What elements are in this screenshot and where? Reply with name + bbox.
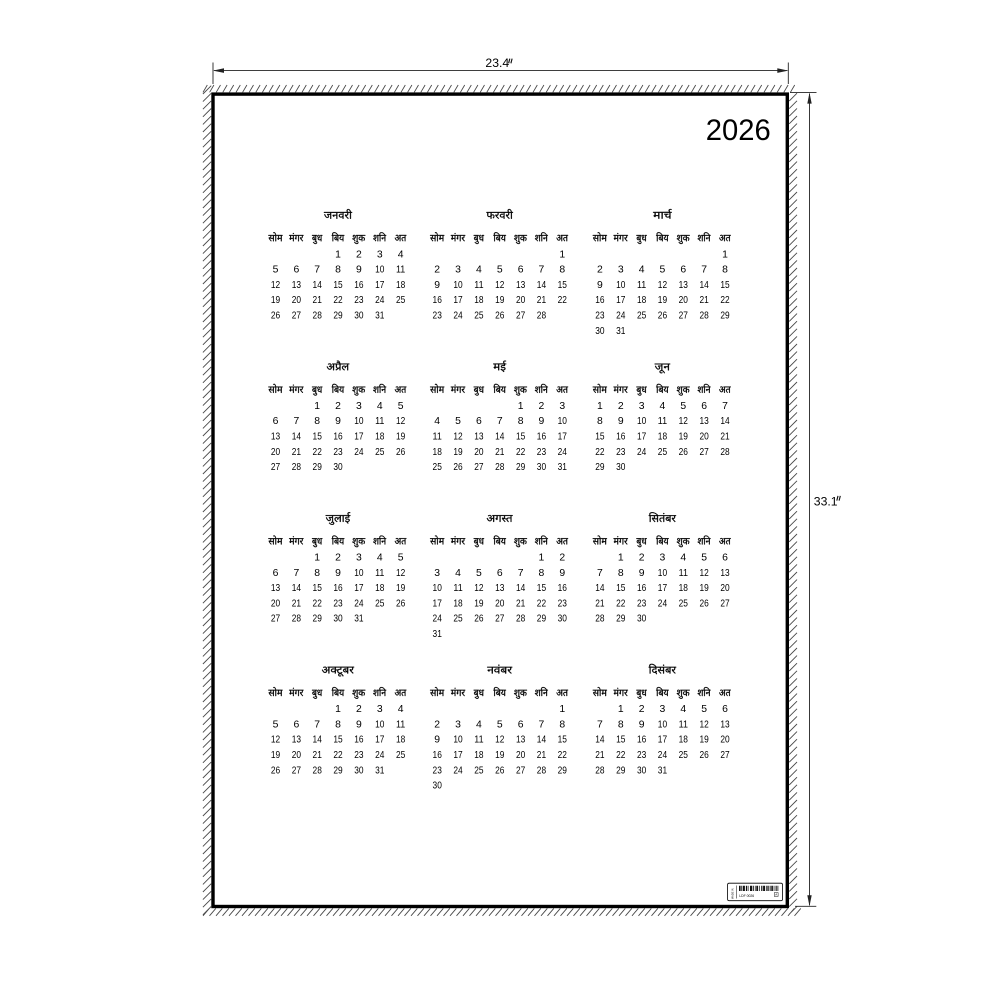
svg-text:14: 14 — [495, 432, 504, 443]
svg-text:27: 27 — [720, 598, 729, 609]
svg-text:31: 31 — [616, 326, 625, 337]
svg-text:28: 28 — [700, 311, 709, 322]
svg-text:9: 9 — [434, 735, 440, 746]
svg-text:8: 8 — [335, 719, 341, 730]
svg-text:13: 13 — [700, 416, 709, 427]
svg-text:25: 25 — [396, 750, 405, 761]
svg-text:29: 29 — [616, 765, 625, 776]
svg-text:28: 28 — [292, 462, 301, 473]
svg-text:25: 25 — [679, 750, 688, 761]
svg-text:7: 7 — [539, 265, 545, 276]
svg-text:10: 10 — [453, 735, 462, 746]
svg-text:24: 24 — [616, 311, 625, 322]
svg-text:33.1: 33.1 — [814, 494, 838, 508]
svg-text:29: 29 — [313, 614, 322, 625]
svg-text:18: 18 — [433, 447, 442, 458]
svg-text:15: 15 — [313, 583, 322, 594]
svg-text:27: 27 — [271, 462, 280, 473]
svg-text:6: 6 — [722, 704, 728, 715]
svg-text:9: 9 — [618, 416, 624, 427]
svg-text:18: 18 — [474, 750, 483, 761]
svg-text:16: 16 — [537, 432, 546, 443]
svg-text:19: 19 — [271, 295, 280, 306]
svg-text:5: 5 — [273, 719, 279, 730]
svg-text:27: 27 — [271, 614, 280, 625]
svg-text:31: 31 — [375, 765, 384, 776]
svg-text:3: 3 — [639, 401, 645, 412]
svg-text:11: 11 — [474, 735, 483, 746]
svg-text:22: 22 — [616, 750, 625, 761]
svg-text:23: 23 — [333, 447, 342, 458]
svg-text:14: 14 — [313, 735, 322, 746]
svg-text:17: 17 — [453, 295, 462, 306]
svg-text:12: 12 — [495, 735, 504, 746]
svg-text:25: 25 — [474, 765, 483, 776]
svg-text:21: 21 — [720, 432, 729, 443]
svg-text:19: 19 — [700, 583, 709, 594]
svg-text:29: 29 — [333, 765, 342, 776]
svg-text:25: 25 — [679, 598, 688, 609]
svg-text:20: 20 — [292, 750, 301, 761]
svg-text:24: 24 — [453, 311, 462, 322]
svg-text:24: 24 — [354, 447, 363, 458]
svg-text:13: 13 — [271, 583, 280, 594]
svg-text:9: 9 — [539, 416, 545, 427]
svg-text:23: 23 — [637, 598, 646, 609]
svg-text:1: 1 — [618, 704, 624, 715]
svg-text:21: 21 — [292, 447, 301, 458]
svg-text:26: 26 — [679, 447, 688, 458]
svg-text:11: 11 — [658, 416, 667, 427]
svg-text:26: 26 — [271, 765, 280, 776]
svg-text:24: 24 — [637, 447, 646, 458]
svg-text:A: A — [775, 893, 777, 897]
svg-text:26: 26 — [658, 311, 667, 322]
svg-text:15: 15 — [333, 280, 342, 291]
svg-text:29: 29 — [537, 614, 546, 625]
svg-text:23: 23 — [637, 750, 646, 761]
svg-text:20: 20 — [720, 583, 729, 594]
svg-text:27: 27 — [292, 311, 301, 322]
svg-text:7: 7 — [314, 265, 320, 276]
svg-text:30: 30 — [637, 765, 646, 776]
svg-text:16: 16 — [616, 432, 625, 443]
svg-text:4: 4 — [660, 401, 666, 412]
svg-text:4: 4 — [434, 416, 440, 427]
svg-text:7: 7 — [722, 401, 728, 412]
svg-text:2: 2 — [618, 401, 624, 412]
svg-text:29: 29 — [720, 311, 729, 322]
svg-text:6: 6 — [518, 265, 524, 276]
svg-text:22: 22 — [516, 447, 525, 458]
svg-text:7: 7 — [518, 568, 524, 579]
svg-text:15: 15 — [313, 432, 322, 443]
svg-text:15: 15 — [558, 735, 567, 746]
svg-text:28: 28 — [595, 765, 604, 776]
svg-text:20: 20 — [679, 295, 688, 306]
svg-text:10: 10 — [375, 719, 384, 730]
svg-text:5: 5 — [273, 265, 279, 276]
svg-text:22: 22 — [558, 295, 567, 306]
svg-text:30: 30 — [354, 765, 363, 776]
svg-text:28: 28 — [516, 614, 525, 625]
svg-text:7: 7 — [597, 568, 603, 579]
svg-text:19: 19 — [271, 750, 280, 761]
svg-text:1: 1 — [335, 704, 341, 715]
svg-text:26: 26 — [495, 765, 504, 776]
svg-text:6: 6 — [476, 416, 482, 427]
svg-text:29: 29 — [616, 614, 625, 625]
svg-text:26: 26 — [474, 614, 483, 625]
svg-text:18: 18 — [637, 295, 646, 306]
svg-text:4: 4 — [476, 719, 482, 730]
svg-text:26: 26 — [271, 311, 280, 322]
svg-text:23: 23 — [537, 447, 546, 458]
svg-text:18: 18 — [396, 280, 405, 291]
svg-text:8: 8 — [539, 568, 545, 579]
svg-text:22: 22 — [537, 598, 546, 609]
svg-text:9: 9 — [597, 280, 603, 291]
svg-text:13: 13 — [271, 432, 280, 443]
svg-text:23: 23 — [354, 295, 363, 306]
svg-text:19: 19 — [495, 750, 504, 761]
svg-text:1: 1 — [618, 553, 624, 564]
svg-text:9: 9 — [559, 568, 565, 579]
svg-text:12: 12 — [271, 735, 280, 746]
svg-text:3: 3 — [559, 401, 565, 412]
svg-text:20: 20 — [474, 447, 483, 458]
svg-text:12: 12 — [396, 416, 405, 427]
svg-text:4: 4 — [680, 704, 686, 715]
svg-text:14: 14 — [292, 432, 301, 443]
svg-text:2: 2 — [434, 719, 440, 730]
svg-text:24: 24 — [354, 598, 363, 609]
svg-text:6: 6 — [273, 568, 279, 579]
svg-text:11: 11 — [396, 719, 405, 730]
svg-text:24: 24 — [375, 295, 384, 306]
svg-text:13: 13 — [495, 583, 504, 594]
svg-text:22: 22 — [313, 447, 322, 458]
svg-text:12: 12 — [700, 568, 709, 579]
svg-text:21: 21 — [516, 598, 525, 609]
svg-text:6: 6 — [497, 568, 503, 579]
svg-text:9: 9 — [335, 416, 341, 427]
svg-text:3: 3 — [660, 553, 666, 564]
svg-text:14: 14 — [537, 735, 546, 746]
svg-text:10: 10 — [658, 568, 667, 579]
svg-text:10: 10 — [616, 280, 625, 291]
svg-text:19: 19 — [396, 583, 405, 594]
svg-text:21: 21 — [313, 750, 322, 761]
svg-text:8: 8 — [559, 265, 565, 276]
svg-text:29: 29 — [558, 765, 567, 776]
svg-text:31: 31 — [354, 614, 363, 625]
svg-text:26: 26 — [495, 311, 504, 322]
svg-text:1: 1 — [518, 401, 524, 412]
svg-text:5: 5 — [701, 553, 707, 564]
svg-text:17: 17 — [354, 432, 363, 443]
svg-text:27: 27 — [700, 447, 709, 458]
svg-text:20: 20 — [516, 750, 525, 761]
svg-text:8: 8 — [618, 568, 624, 579]
svg-text:15: 15 — [558, 280, 567, 291]
svg-text:12: 12 — [474, 583, 483, 594]
svg-text:10: 10 — [354, 568, 363, 579]
svg-text:12: 12 — [658, 280, 667, 291]
svg-text:9: 9 — [356, 265, 362, 276]
svg-text:16: 16 — [333, 432, 342, 443]
svg-text:7: 7 — [701, 265, 707, 276]
svg-text:15: 15 — [616, 735, 625, 746]
svg-text:11: 11 — [375, 416, 384, 427]
svg-text:1: 1 — [597, 401, 603, 412]
svg-text:3: 3 — [377, 704, 383, 715]
svg-text:1: 1 — [335, 249, 341, 260]
svg-text:3: 3 — [618, 265, 624, 276]
svg-text:17: 17 — [658, 583, 667, 594]
svg-text:16: 16 — [637, 735, 646, 746]
svg-text:31: 31 — [658, 765, 667, 776]
svg-text:18: 18 — [658, 432, 667, 443]
svg-text:19: 19 — [396, 432, 405, 443]
svg-text:30: 30 — [354, 311, 363, 322]
svg-text:10: 10 — [354, 416, 363, 427]
svg-text:21: 21 — [537, 750, 546, 761]
svg-text:18: 18 — [396, 735, 405, 746]
svg-text:4: 4 — [398, 704, 404, 715]
svg-text:2: 2 — [335, 401, 341, 412]
svg-text:14: 14 — [720, 416, 729, 427]
svg-text:27: 27 — [720, 750, 729, 761]
svg-text:27: 27 — [474, 462, 483, 473]
svg-text:13: 13 — [292, 735, 301, 746]
svg-text:5: 5 — [398, 401, 404, 412]
svg-text:12: 12 — [396, 568, 405, 579]
svg-text:6: 6 — [293, 719, 299, 730]
svg-text:26: 26 — [700, 598, 709, 609]
svg-text:2: 2 — [356, 704, 362, 715]
svg-text:19: 19 — [453, 447, 462, 458]
svg-text:2: 2 — [335, 553, 341, 564]
svg-text:5: 5 — [497, 719, 503, 730]
svg-text:2: 2 — [356, 249, 362, 260]
svg-text:25: 25 — [396, 295, 405, 306]
svg-text:15: 15 — [616, 583, 625, 594]
svg-text:20: 20 — [271, 447, 280, 458]
svg-text:26: 26 — [700, 750, 709, 761]
svg-text:1: 1 — [559, 249, 565, 260]
svg-text:15: 15 — [720, 280, 729, 291]
svg-text:3: 3 — [660, 704, 666, 715]
svg-text:10: 10 — [637, 416, 646, 427]
svg-text:15: 15 — [595, 432, 604, 443]
svg-text:26: 26 — [453, 462, 462, 473]
svg-text:26: 26 — [396, 447, 405, 458]
svg-text:25: 25 — [433, 462, 442, 473]
svg-text:5: 5 — [497, 265, 503, 276]
svg-text:25: 25 — [375, 598, 384, 609]
svg-text:11: 11 — [679, 568, 688, 579]
svg-text:15: 15 — [537, 583, 546, 594]
svg-text:20: 20 — [271, 598, 280, 609]
svg-text:4: 4 — [680, 553, 686, 564]
svg-text:10: 10 — [453, 280, 462, 291]
svg-text:4: 4 — [455, 568, 461, 579]
svg-text:3: 3 — [377, 249, 383, 260]
svg-text:5: 5 — [660, 265, 666, 276]
svg-text:23: 23 — [333, 598, 342, 609]
svg-text:24: 24 — [558, 447, 567, 458]
svg-text:23: 23 — [433, 765, 442, 776]
svg-text:6: 6 — [701, 401, 707, 412]
svg-text:30: 30 — [616, 462, 625, 473]
svg-text:17: 17 — [453, 750, 462, 761]
svg-text:30: 30 — [333, 614, 342, 625]
svg-text:9: 9 — [356, 719, 362, 730]
svg-text:12: 12 — [495, 280, 504, 291]
svg-text:22: 22 — [616, 598, 625, 609]
svg-text:27: 27 — [516, 311, 525, 322]
svg-text:12: 12 — [453, 432, 462, 443]
svg-text:17: 17 — [354, 583, 363, 594]
svg-text:28: 28 — [495, 462, 504, 473]
svg-text:8: 8 — [597, 416, 603, 427]
svg-text:16: 16 — [637, 583, 646, 594]
svg-text:14: 14 — [516, 583, 525, 594]
svg-text:17: 17 — [637, 432, 646, 443]
svg-text:18: 18 — [375, 432, 384, 443]
svg-text:16: 16 — [595, 295, 604, 306]
svg-text:16: 16 — [433, 750, 442, 761]
svg-text:17: 17 — [658, 735, 667, 746]
svg-text:4: 4 — [377, 553, 383, 564]
svg-text:28: 28 — [595, 614, 604, 625]
svg-text:21: 21 — [595, 750, 604, 761]
svg-text:13: 13 — [474, 432, 483, 443]
svg-text:3: 3 — [434, 568, 440, 579]
svg-text:8: 8 — [722, 265, 728, 276]
svg-text:29: 29 — [595, 462, 604, 473]
svg-text:3: 3 — [455, 265, 461, 276]
svg-text:3: 3 — [455, 719, 461, 730]
svg-text:29: 29 — [313, 462, 322, 473]
svg-text:8: 8 — [314, 416, 320, 427]
svg-text:18: 18 — [679, 583, 688, 594]
svg-text:22: 22 — [595, 447, 604, 458]
svg-text:29: 29 — [333, 311, 342, 322]
svg-text:25: 25 — [637, 311, 646, 322]
svg-text:27: 27 — [516, 765, 525, 776]
svg-text:1: 1 — [722, 249, 728, 260]
svg-text:13: 13 — [292, 280, 301, 291]
svg-text:24: 24 — [658, 598, 667, 609]
svg-text:5: 5 — [398, 553, 404, 564]
svg-text:23: 23 — [616, 447, 625, 458]
svg-text:31: 31 — [558, 462, 567, 473]
svg-text:19: 19 — [474, 598, 483, 609]
svg-text:8: 8 — [314, 568, 320, 579]
svg-text:30: 30 — [333, 462, 342, 473]
svg-text:17: 17 — [375, 735, 384, 746]
svg-text:20: 20 — [292, 295, 301, 306]
svg-text:20: 20 — [700, 432, 709, 443]
svg-text:23: 23 — [354, 750, 363, 761]
svg-text:5: 5 — [455, 416, 461, 427]
svg-text:17: 17 — [616, 295, 625, 306]
svg-text:28: 28 — [537, 311, 546, 322]
svg-text:16: 16 — [354, 280, 363, 291]
svg-text:1: 1 — [539, 553, 545, 564]
svg-text:30: 30 — [637, 614, 646, 625]
svg-text:21: 21 — [700, 295, 709, 306]
svg-text:9: 9 — [335, 568, 341, 579]
svg-text:4: 4 — [476, 265, 482, 276]
svg-text:11: 11 — [679, 719, 688, 730]
svg-text:21: 21 — [292, 598, 301, 609]
svg-text:27: 27 — [495, 614, 504, 625]
svg-text:5: 5 — [476, 568, 482, 579]
svg-text:25: 25 — [658, 447, 667, 458]
svg-text:6: 6 — [722, 553, 728, 564]
svg-text:13: 13 — [516, 735, 525, 746]
svg-text:28: 28 — [537, 765, 546, 776]
svg-text:10: 10 — [658, 719, 667, 730]
svg-text:22: 22 — [720, 295, 729, 306]
svg-text:19: 19 — [658, 295, 667, 306]
svg-text:28: 28 — [720, 447, 729, 458]
svg-text:18: 18 — [679, 735, 688, 746]
svg-text:11: 11 — [433, 432, 442, 443]
svg-text:30: 30 — [595, 326, 604, 337]
svg-text:18: 18 — [375, 583, 384, 594]
svg-text:10: 10 — [433, 583, 442, 594]
svg-text:28: 28 — [313, 311, 322, 322]
svg-text:24: 24 — [433, 614, 442, 625]
svg-text:22: 22 — [333, 295, 342, 306]
svg-text:2: 2 — [639, 704, 645, 715]
svg-text:25: 25 — [453, 614, 462, 625]
svg-text:27: 27 — [679, 311, 688, 322]
svg-text:2026: 2026 — [706, 115, 771, 147]
svg-text:14: 14 — [537, 280, 546, 291]
svg-text:3: 3 — [356, 553, 362, 564]
svg-text:8: 8 — [518, 416, 524, 427]
svg-text:7: 7 — [597, 719, 603, 730]
svg-text:14: 14 — [313, 280, 322, 291]
svg-text:24: 24 — [375, 750, 384, 761]
svg-text:9: 9 — [434, 280, 440, 291]
svg-text:2: 2 — [559, 553, 565, 564]
svg-text:22: 22 — [313, 598, 322, 609]
svg-text:15: 15 — [516, 432, 525, 443]
svg-text:19: 19 — [495, 295, 504, 306]
svg-text:20: 20 — [516, 295, 525, 306]
svg-text:21: 21 — [313, 295, 322, 306]
svg-text:9: 9 — [639, 719, 645, 730]
svg-text:15: 15 — [333, 735, 342, 746]
svg-text:LDF 0026: LDF 0026 — [739, 894, 754, 898]
svg-text:18: 18 — [474, 295, 483, 306]
svg-text:14: 14 — [700, 280, 709, 291]
svg-text:2: 2 — [539, 401, 545, 412]
svg-text:27: 27 — [292, 765, 301, 776]
svg-text:9: 9 — [639, 568, 645, 579]
svg-text:11: 11 — [375, 568, 384, 579]
svg-text:22: 22 — [333, 750, 342, 761]
svg-text:6: 6 — [680, 265, 686, 276]
svg-text:23.4: 23.4 — [485, 56, 509, 70]
svg-text:12: 12 — [271, 280, 280, 291]
